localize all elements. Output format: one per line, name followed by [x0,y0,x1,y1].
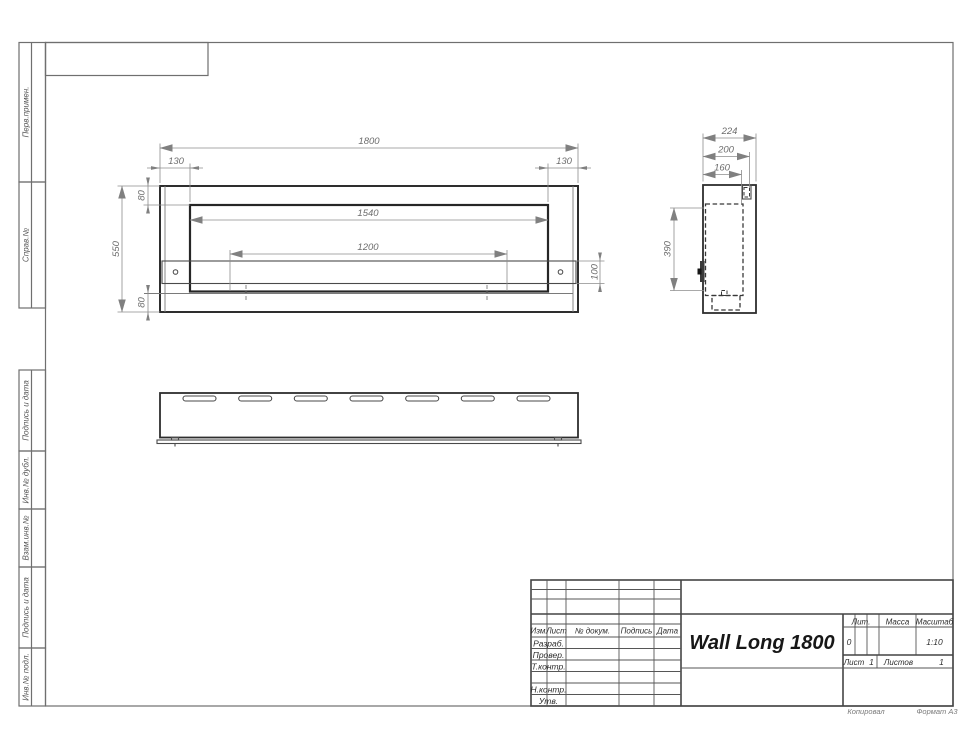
dim-overall-depth: 224 [721,126,738,137]
front-view: 1800 130 130 80 550 [111,136,605,321]
sheet-footer: Копировал Формат А3 [847,707,958,716]
top-left-designation-box [46,43,209,76]
row-developed: Разраб. [533,639,564,649]
vent-slot [294,396,327,401]
drawing-canvas: Перв.примен. Справ.№ Подпись и дата Инв.… [0,0,970,749]
dim-offset-right: 130 [556,156,573,167]
scale-value: 1:10 [926,637,943,647]
title-block: Изм. Лист № докум. Подпись Дата Разраб. … [530,580,953,706]
dim-inner-depth: 200 [717,145,735,156]
margin-label-perv-primen: Перв.примен. [22,87,31,138]
margin-label-inv-podl: Инв.№ подл. [22,653,31,700]
col-list: Лист [545,627,567,636]
dim-band-height: 100 [590,263,601,280]
vent-slot [350,396,383,401]
sheets-total-label: Листов [883,658,913,667]
vent-slot [183,396,216,401]
copied-label: Копировал [847,707,885,716]
dim-offset-left: 130 [168,156,185,167]
mount-rail [157,440,581,444]
vent-slot [517,396,550,401]
row-approved: Утв. [538,696,558,706]
dim-bottom-inset: 80 [137,297,148,308]
side-bracket-pin [698,269,702,275]
side-dimensions: 224 200 160 390 [663,126,757,291]
lit-label: Лит. [851,618,871,627]
sheets-total-value: 1 [939,657,944,667]
center-mark-left [245,285,247,300]
scale-label: Масштаб [916,618,954,627]
mount-hole-right [558,270,563,275]
side-hidden-contour [706,204,744,296]
vent-slot [461,396,494,401]
margin-label-vzam-inv: Взам.инв.№ [22,515,31,560]
sheet-no-label: Лист [843,658,865,667]
row-tcontrol: Т.контр. [531,662,565,672]
col-date: Дата [656,627,679,636]
front-dimensions: 1800 130 130 80 550 [111,136,605,321]
side-burner-box [712,296,740,311]
drawing-sheet: Перв.примен. Справ.№ Подпись и дата Инв.… [0,0,970,749]
row-ncontrol: Н.контр. [531,685,567,695]
product-name: Wall Long 1800 [689,632,834,654]
margin-label-inv-dubl: Инв.№ дубл. [22,457,31,504]
dim-mount-depth: 160 [714,163,731,174]
margin-label-podpis-data-1: Подпись и дата [22,380,31,441]
lit-value: 0 [847,637,852,647]
row-checked: Провер. [533,650,565,660]
vent-slot [406,396,439,401]
sheet-no-value: 1 [869,657,874,667]
left-margin-column: Перв.примен. Справ.№ Подпись и дата Инв.… [19,43,46,707]
dim-overall-width: 1800 [358,136,380,147]
dim-opening-height: 390 [663,240,674,257]
dim-inner-span: 1200 [357,242,379,253]
dim-opening-width: 1540 [357,208,379,219]
vent-slot [239,396,272,401]
center-mark-right [486,285,488,300]
mass-label: Масса [886,618,910,627]
col-izm: Изм. [530,627,547,636]
side-view: 224 200 160 390 [663,126,757,313]
col-sign: Подпись [621,627,653,636]
plan-view [157,393,581,447]
sheet-frame [46,43,954,707]
margin-label-sprav-no: Справ.№ [22,228,31,262]
dim-overall-height: 550 [111,240,122,257]
front-band [162,261,576,284]
col-doc-num: № докум. [575,627,610,636]
dim-top-inset: 80 [137,190,148,201]
mount-hole-left [173,270,178,275]
margin-label-podpis-data-2: Подпись и дата [22,577,31,638]
format-label: Формат А3 [916,707,958,716]
